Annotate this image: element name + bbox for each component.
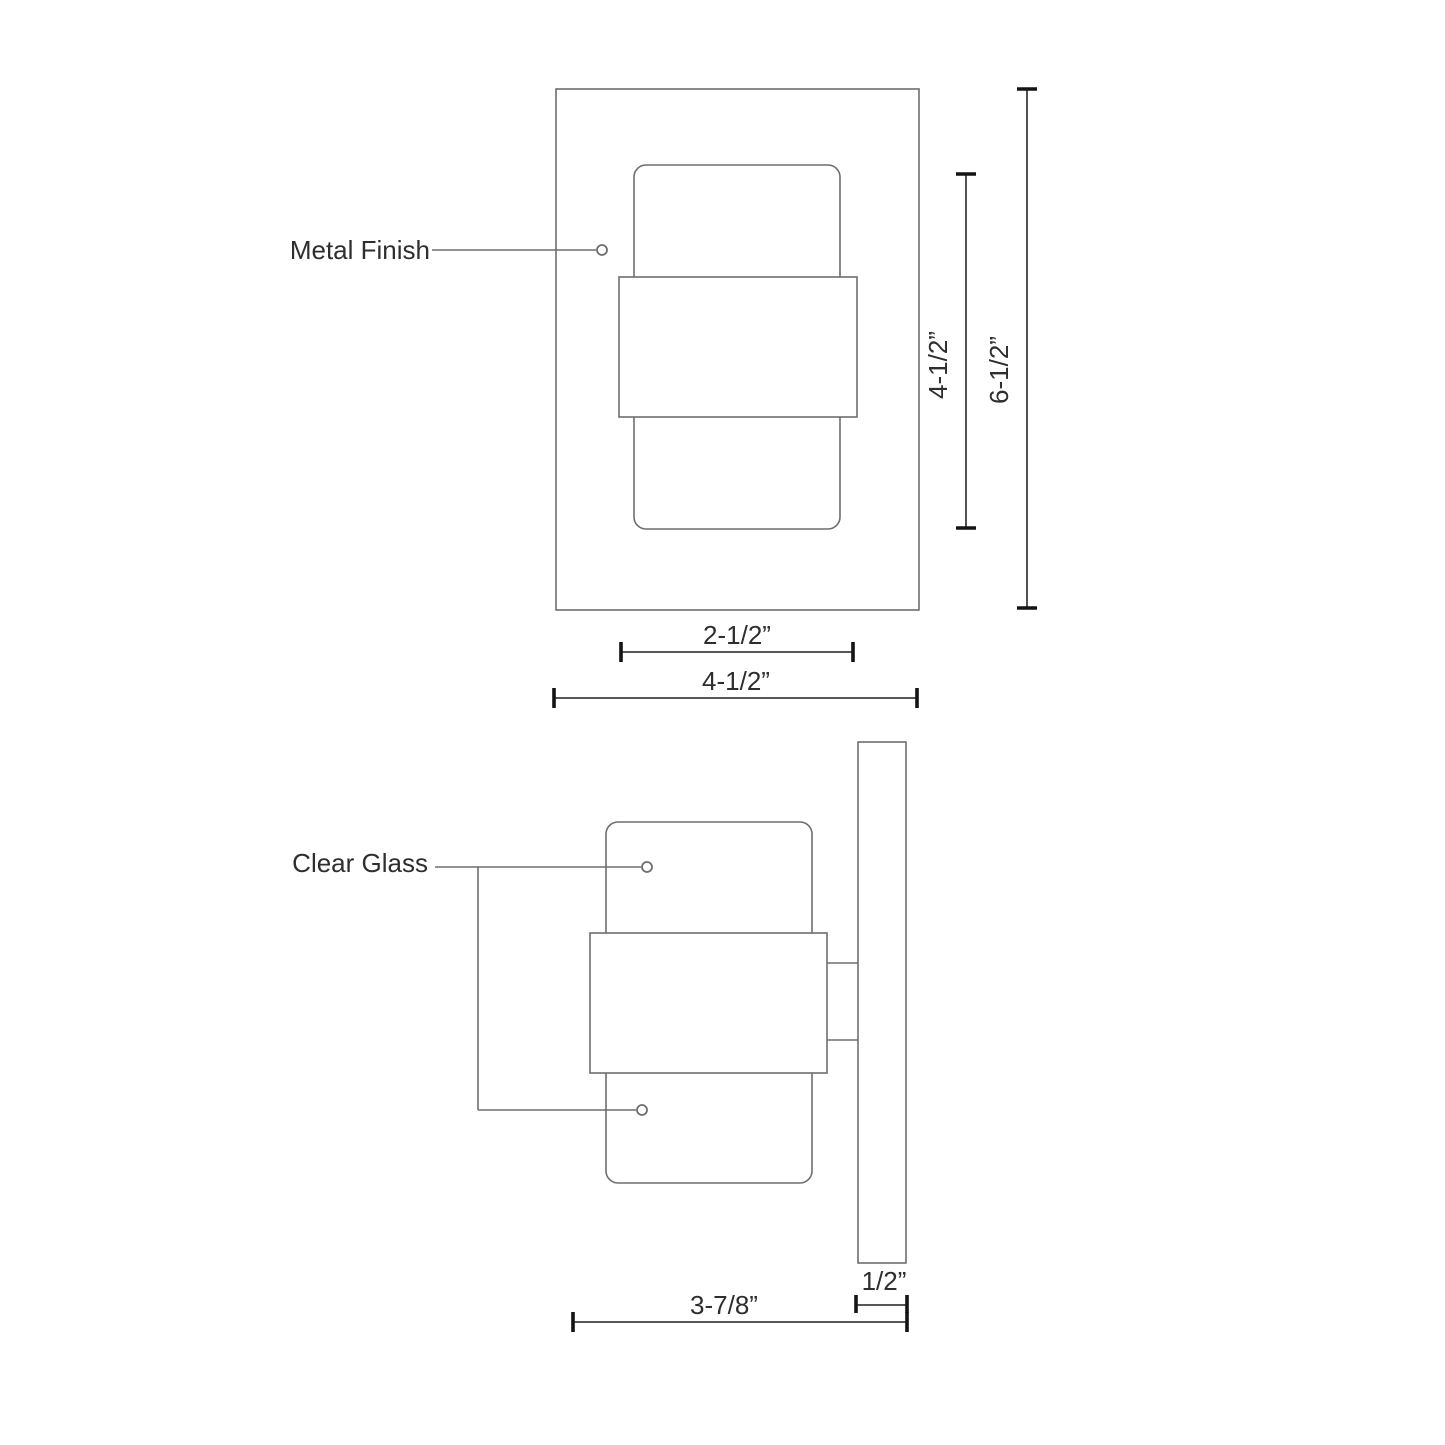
- metal-finish-label: Metal Finish: [290, 235, 430, 265]
- dim-backplate-depth: 1/2”: [856, 1266, 907, 1313]
- dimension-drawing: Metal Finish 4-1/2” 6-1/2” 2-1/2”: [0, 0, 1445, 1445]
- dim-overall-height-label: 6-1/2”: [984, 336, 1014, 404]
- clear-glass-label: Clear Glass: [292, 848, 428, 878]
- front-metal-band-outline: [619, 277, 857, 417]
- front-view: Metal Finish 4-1/2” 6-1/2” 2-1/2”: [290, 89, 1037, 708]
- metal-finish-leader-dot: [597, 245, 607, 255]
- dim-overall-height: 6-1/2”: [984, 89, 1037, 608]
- dim-overall-width-label: 4-1/2”: [702, 666, 770, 696]
- side-view: Clear Glass 3-7/8” 1/2”: [292, 742, 907, 1332]
- clear-glass-leader-dot-upper: [642, 862, 652, 872]
- dim-band-width: 2-1/2”: [621, 620, 853, 662]
- dim-glass-height: 4-1/2”: [923, 174, 976, 528]
- dim-band-width-label: 2-1/2”: [703, 620, 771, 650]
- drawing-canvas: Metal Finish 4-1/2” 6-1/2” 2-1/2”: [0, 0, 1445, 1445]
- side-backplate-outline: [858, 742, 906, 1263]
- dim-glass-height-label: 4-1/2”: [923, 331, 953, 399]
- dim-backplate-depth-label: 1/2”: [862, 1266, 907, 1296]
- clear-glass-leader-dot-lower: [637, 1105, 647, 1115]
- side-metal-band-outline: [590, 933, 827, 1073]
- dim-depth-label: 3-7/8”: [690, 1290, 758, 1320]
- dim-overall-width: 4-1/2”: [554, 666, 917, 708]
